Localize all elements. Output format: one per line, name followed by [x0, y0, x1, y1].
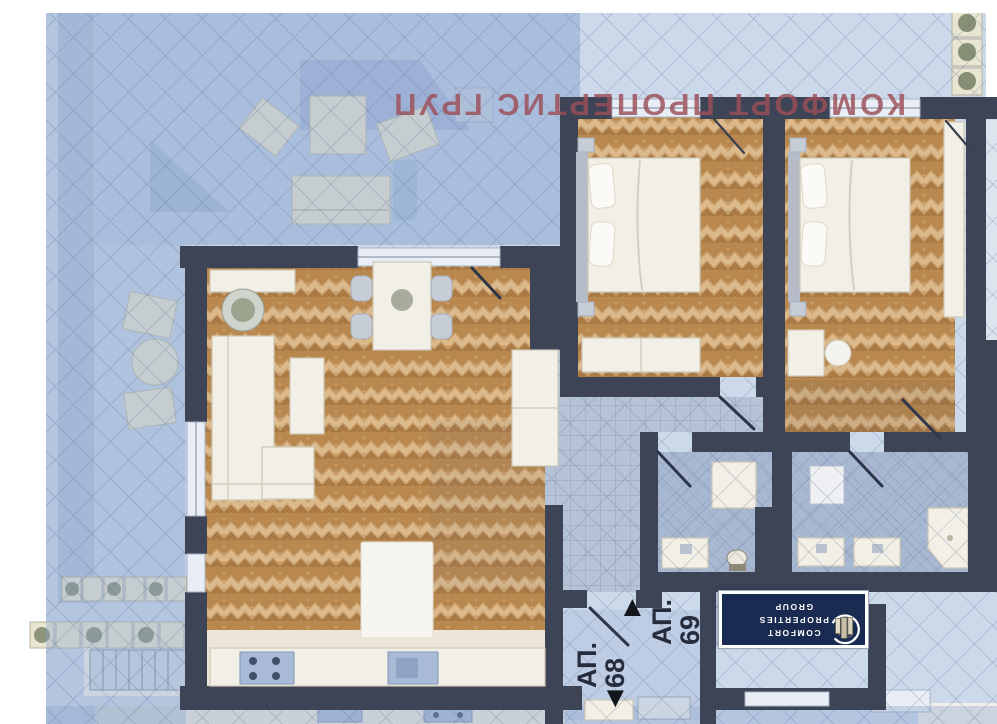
apartment-label-68: АП. 68 ▼ [571, 628, 633, 688]
stove [240, 652, 294, 684]
pillow [800, 221, 827, 267]
nightstand [578, 302, 594, 316]
apartment-68-number: 68 [601, 626, 629, 688]
dining-chair [351, 314, 372, 339]
coffee-table [290, 358, 324, 434]
rug [361, 542, 433, 638]
table-plant-icon [391, 289, 413, 311]
desk [788, 330, 824, 376]
nightstand [578, 138, 594, 152]
pillow [800, 163, 828, 209]
dining-chair [431, 276, 452, 301]
apartment-68-prefix: АП. [573, 626, 601, 688]
arrow-down-icon: ▼ [601, 684, 630, 713]
headboard-1 [576, 152, 588, 302]
apartment-label-69: АП. 69 ▲ [646, 585, 708, 645]
dining-chair [431, 314, 452, 339]
pillow [588, 221, 615, 267]
headboard-2 [788, 152, 800, 302]
floor-plan-page: КОМФОРТ ПРОПЕРТИС ГРУП АП. 68 ▼ АП. 69 ▲… [0, 0, 997, 724]
wardrobe-2 [944, 122, 964, 317]
arrow-up-icon: ▲ [618, 593, 647, 622]
dining-chair [351, 276, 372, 301]
bottom-window [745, 692, 829, 706]
logo-buildings-icon [827, 607, 865, 645]
desk-chair [825, 340, 851, 366]
nightstand [790, 302, 806, 316]
apartment-69-prefix: АП. [648, 583, 676, 645]
nightstand [790, 138, 806, 152]
left-window-2 [187, 554, 205, 592]
sideboard [210, 270, 295, 292]
apartment-69-number: 69 [676, 583, 704, 645]
pillow [588, 163, 616, 209]
watermark-text: КОМФОРТ ПРОПЕРТИС ГРУП [398, 84, 906, 124]
agency-logo: COMFORT PROPERTIES GROUP [719, 591, 868, 648]
